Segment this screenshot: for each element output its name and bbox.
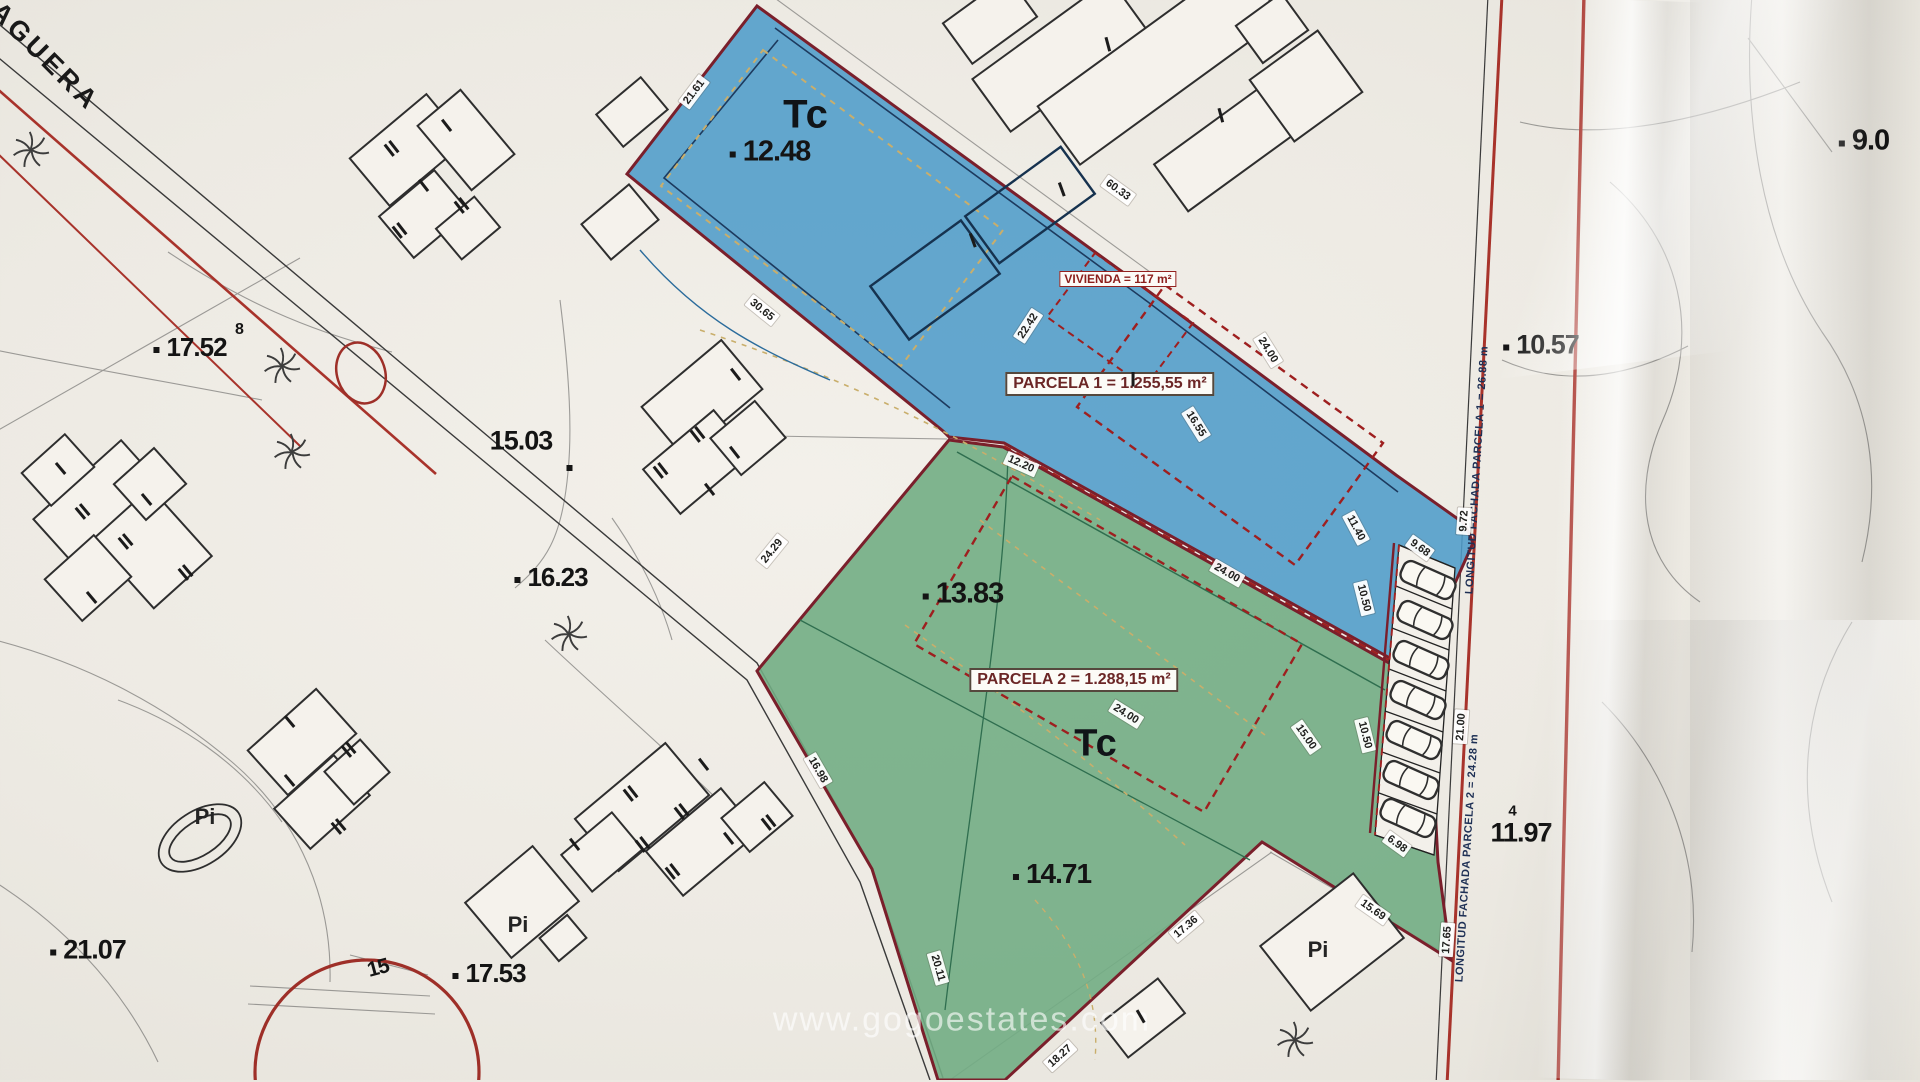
tree-icon xyxy=(265,348,300,383)
road-red-line xyxy=(0,150,300,446)
tree-icon xyxy=(275,434,310,469)
tree-icon xyxy=(1278,1022,1313,1057)
site-plan-svg xyxy=(0,0,1920,1080)
pond xyxy=(147,790,254,885)
tree-icon xyxy=(14,132,49,167)
scanned-site-plan: { "map": { "street_name": "AGUERA", "wat… xyxy=(0,0,1920,1080)
building-outline xyxy=(1101,978,1185,1057)
tree-icon xyxy=(552,616,587,651)
survey-circle xyxy=(329,336,394,410)
road-red-line xyxy=(1558,0,1584,1080)
building-outline xyxy=(581,184,658,259)
survey-circle-large xyxy=(255,960,479,1080)
